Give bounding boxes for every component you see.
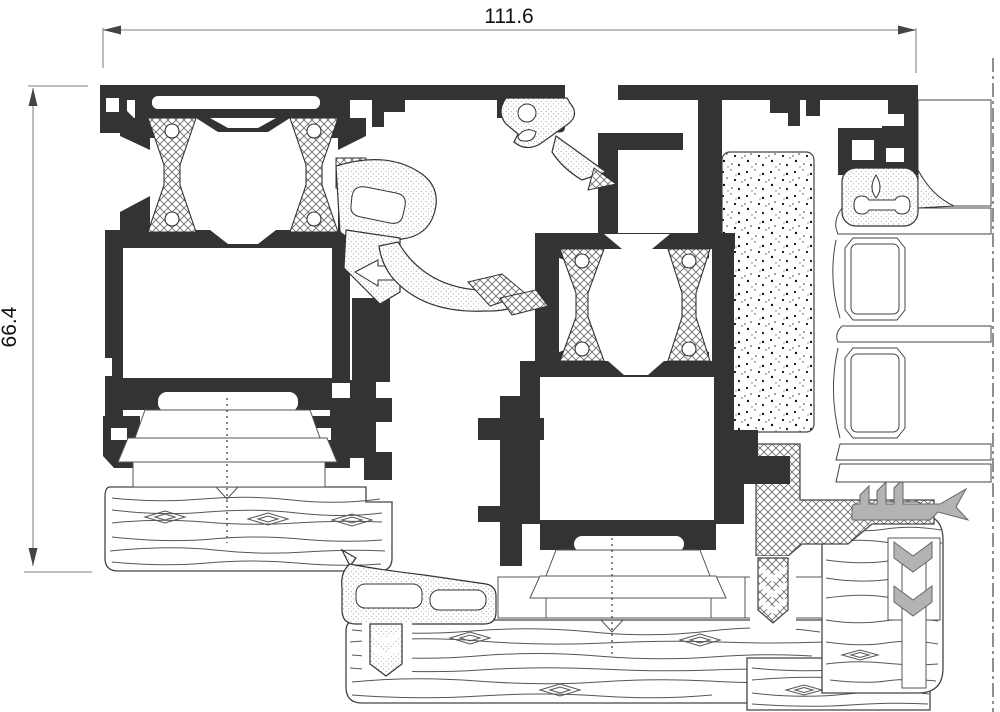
gasket-central	[336, 158, 548, 315]
dimension-width: 111.6	[103, 5, 916, 73]
dim-arrow-left	[103, 26, 121, 35]
dim-arrow-top	[29, 88, 38, 106]
dim-arrow-right	[898, 26, 916, 35]
insulation-foam-block	[722, 152, 814, 432]
interlock-hardware	[838, 100, 918, 175]
sash-thermal-breaks	[560, 249, 710, 361]
dimension-height: 66.4	[0, 86, 92, 572]
width-dimension-label: 111.6	[484, 5, 533, 28]
technical-drawing: 111.6 66.4	[0, 0, 1000, 712]
frame-thermal-breaks	[148, 118, 338, 232]
dim-arrow-bottom	[29, 548, 38, 566]
drawing-canvas: 111.6 66.4	[0, 0, 1000, 712]
height-dimension-label: 66.4	[0, 306, 21, 347]
